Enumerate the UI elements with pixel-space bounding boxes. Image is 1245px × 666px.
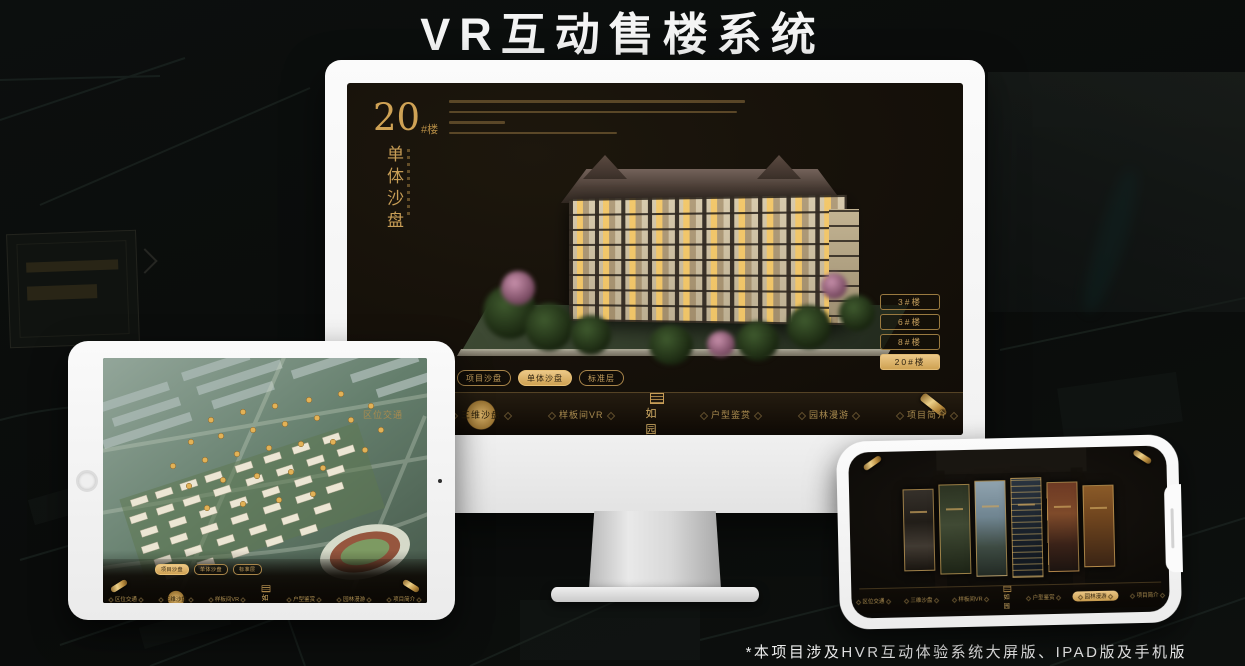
scroll-handle-icon[interactable] [402,579,420,594]
plaque-text-line [27,284,97,300]
page-title: VR互动售楼系统 [0,0,1245,63]
subtab-standard-floor[interactable]: 标准层 [579,370,624,386]
section-title-vertical: 单体沙盘 [381,145,406,233]
background-photo [988,72,1245,312]
nav-item-garden-tour[interactable]: 园林漫游 [793,404,865,425]
gallery-panel[interactable] [1046,481,1079,572]
building-3d-model[interactable] [499,153,879,393]
camera-dot-icon [438,479,442,483]
tree [839,295,875,331]
nav-item-floorplan[interactable]: 户型鉴赏 [1024,592,1062,603]
flower-tree [501,271,535,305]
nav-item-location[interactable]: 区位交通 [854,596,892,607]
tablet-device: 项目沙盘 单体沙盘 标准层 区位交通 三维沙盘 样板间VR 如园 户型鉴赏 园林… [68,341,455,620]
brand-logo: 如园 [262,585,271,603]
phone-notch [1164,484,1183,572]
nav-item-project-intro[interactable]: 项目简介 [891,404,963,425]
tablet-subtabs: 项目沙盘 单体沙盘 标准层 [155,564,262,575]
nav-item-model-room-vr[interactable]: 样板间VR [950,593,990,604]
subtab-single-sandtable[interactable]: 单体沙盘 [194,564,228,575]
tablet-nav-bar: 项目沙盘 单体沙盘 标准层 区位交通 三维沙盘 样板间VR 如园 户型鉴赏 园林… [103,559,427,603]
seal-icon [262,585,271,592]
home-button[interactable] [76,470,98,492]
gallery-panel[interactable] [974,480,1007,577]
panel-caption [982,506,999,508]
monitor-subtabs: 项目沙盘 单体沙盘 标准层 [457,370,624,386]
subtab-single-sandtable[interactable]: 单体沙盘 [518,370,572,386]
tablet-screen[interactable]: 项目沙盘 单体沙盘 标准层 区位交通 三维沙盘 样板间VR 如园 户型鉴赏 园林… [103,358,427,603]
description-paragraph [449,100,749,142]
monitor-stand-neck [589,511,721,589]
building-number-unit: #楼 [421,121,438,137]
subtab-project-sandtable[interactable]: 项目沙盘 [155,564,189,575]
tree [649,325,693,365]
phone-device: 区位交通 三维沙盘 样板间VR 如园 户型鉴赏 园林漫游 项目简介 [836,434,1182,630]
building-button-8[interactable]: 8#楼 [880,334,940,350]
building-button-3[interactable]: 3#楼 [880,294,940,310]
nav-item-model-room-vr[interactable]: 样板间VR [207,593,247,603]
phone-nav-bar: 区位交通 三维沙盘 样板间VR 如园 户型鉴赏 园林漫游 项目简介 [859,582,1161,614]
background-plaque [6,230,140,348]
scroll-gallery [902,476,1115,581]
building-button-20[interactable]: 20#楼 [880,354,940,370]
building-selector: 3#楼 6#楼 8#楼 20#楼 [880,294,940,370]
speaker-slit-icon [1171,508,1175,548]
nav-item-sandtable[interactable]: 三维沙盘 [902,595,940,606]
flower-tree [707,331,735,357]
scroll-handle-icon[interactable] [863,455,883,471]
text-line [449,132,617,135]
panel-caption [910,511,927,513]
panel-caption [946,508,963,510]
subtab-standard-floor[interactable]: 标准层 [233,564,262,575]
flower-tree [821,273,847,299]
gallery-panel[interactable] [903,489,936,572]
text-line [449,111,737,114]
text-line [449,121,505,124]
nav-item-project-intro[interactable]: 项目简介 [1128,589,1166,600]
nav-item-sandtable[interactable]: 三维沙盘 [445,404,517,425]
roof-gable [583,155,627,179]
text-line [449,100,745,103]
gallery-panel[interactable] [1010,477,1043,578]
brand-logo: 如园 [1003,586,1011,610]
decorative-english-caption [407,149,410,219]
gallery-panel[interactable] [938,484,971,575]
panel-caption [1054,505,1071,507]
tree [787,305,831,349]
nav-item-sandtable[interactable]: 三维沙盘 [157,593,195,603]
nav-item-model-room-vr[interactable]: 样板间VR [543,404,620,425]
gallery-panel[interactable] [1082,485,1115,568]
phone-screen[interactable]: 区位交通 三维沙盘 样板间VR 如园 户型鉴赏 园林漫游 项目简介 [848,445,1170,618]
building-number-headline: 20 [373,99,420,136]
tree [737,321,779,361]
footnote: *本项目涉及HVR互动体验系统大屏版、IPAD版及手机版 [746,641,1187,662]
tablet-nav-items: 区位交通 三维沙盘 样板间VR 如园 户型鉴赏 园林漫游 项目简介 [129,577,401,603]
nav-item-garden-tour[interactable]: 园林漫游 [1072,591,1118,602]
building-button-6[interactable]: 6#楼 [880,314,940,330]
panel-caption [1090,507,1107,509]
river-shape [1075,167,1146,318]
seal-icon [1003,586,1011,592]
seal-icon [650,393,664,404]
nav-item-floorplan[interactable]: 户型鉴赏 [695,404,767,425]
nav-item-floorplan[interactable]: 户型鉴赏 [285,593,323,603]
monitor-stand-base [551,587,759,602]
scroll-handle-icon[interactable] [1132,449,1152,465]
tree [525,303,573,351]
nav-item-garden-tour[interactable]: 园林漫游 [335,593,373,603]
nav-item-location[interactable]: 区位交通 [107,593,145,603]
brand-logo: 如园 [646,393,669,436]
panel-caption [1018,504,1035,506]
subtab-project-sandtable[interactable]: 项目沙盘 [457,370,511,386]
tree [571,315,611,355]
roof-gable [757,155,801,179]
gate-beam [936,447,1087,474]
nav-item-project-intro[interactable]: 项目简介 [385,593,423,603]
stage: VR互动售楼系统 *本项目涉及HVR互动体验系统大屏版、IPAD版及手机版 20… [0,0,1245,666]
scroll-handle-icon[interactable] [110,579,128,594]
